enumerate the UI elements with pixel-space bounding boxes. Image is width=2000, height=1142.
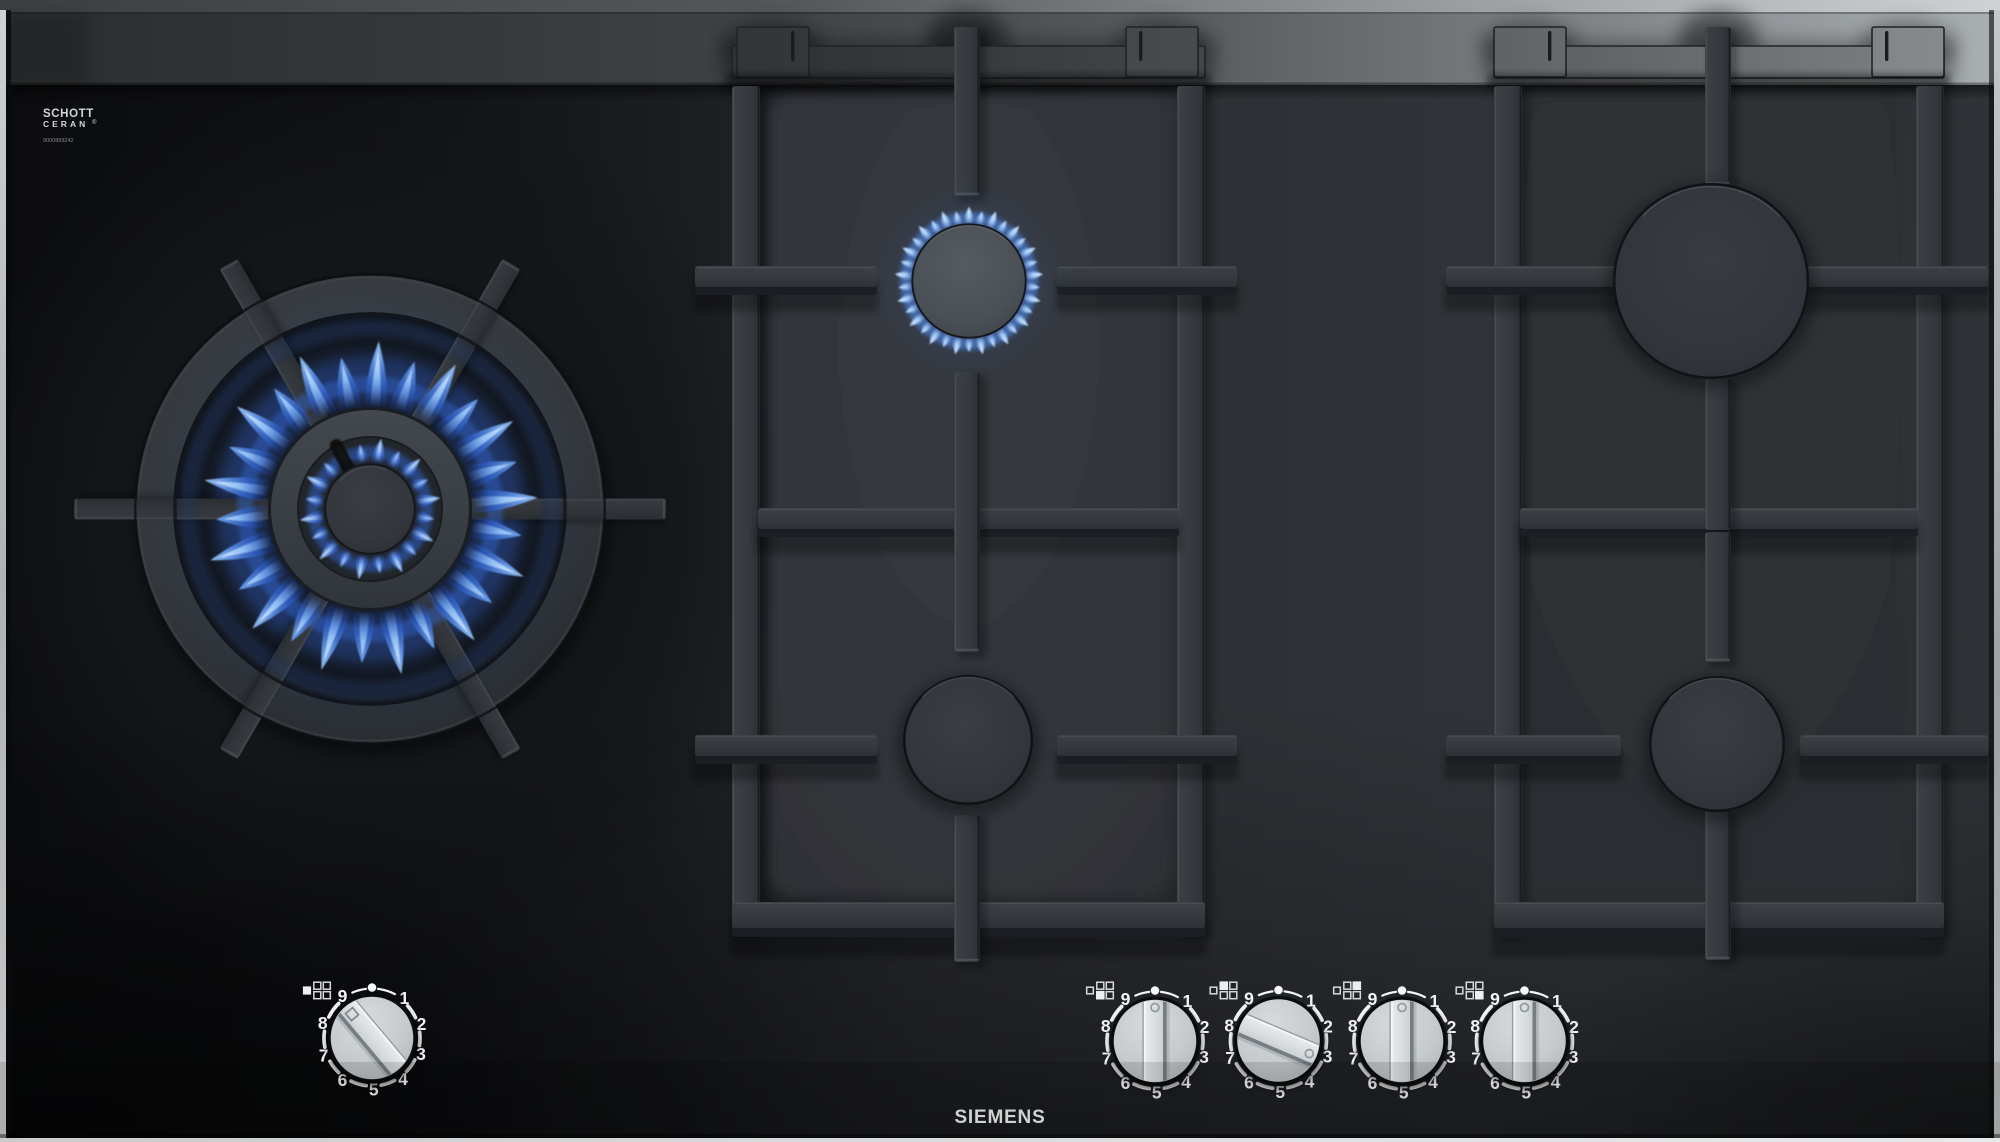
svg-text:CERAN: CERAN: [43, 119, 88, 129]
svg-text:2: 2: [1200, 1017, 1210, 1037]
svg-text:8: 8: [1470, 1016, 1480, 1036]
svg-text:8: 8: [318, 1013, 328, 1033]
svg-text:8: 8: [1224, 1015, 1234, 1035]
svg-text:2: 2: [417, 1014, 427, 1034]
svg-text:2: 2: [1447, 1017, 1457, 1037]
svg-text:®: ®: [92, 119, 97, 126]
svg-text:8: 8: [1101, 1016, 1111, 1036]
svg-text:2: 2: [1323, 1016, 1333, 1036]
svg-text:8: 8: [1348, 1016, 1358, 1036]
svg-text:2: 2: [1569, 1017, 1579, 1037]
svg-text:9000889242: 9000889242: [43, 138, 74, 144]
